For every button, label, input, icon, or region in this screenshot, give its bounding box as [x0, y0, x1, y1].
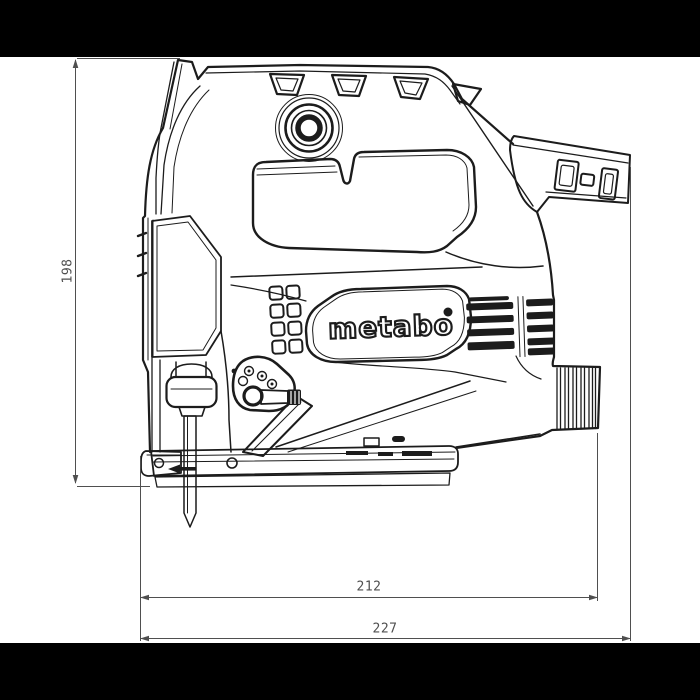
blade-alignment-arrow	[168, 465, 180, 474]
base-plate	[141, 436, 458, 487]
cord-strain-relief	[510, 136, 630, 212]
saw-blade	[184, 416, 196, 527]
speed-dial	[276, 95, 343, 162]
blade-clamp	[167, 362, 217, 416]
technical-drawing-page: { "colors": { "letterbox": "#000000", "c…	[0, 0, 700, 700]
dimension-body-length	[140, 433, 598, 641]
dimension-overall-length-label: 227	[373, 622, 398, 637]
waffle-grip-pattern	[269, 285, 302, 353]
jigsaw-line-drawing	[0, 57, 700, 643]
ventilation-slats	[466, 294, 555, 358]
drawing-canvas	[0, 57, 700, 643]
dimension-height-label: 198	[61, 259, 76, 284]
handle-cutout	[253, 150, 476, 252]
orbital-action-dial	[232, 357, 301, 411]
brand-logo: metabo	[328, 308, 455, 345]
dimension-body-length-label: 212	[357, 580, 382, 595]
dust-extraction-port	[557, 368, 596, 429]
jigsaw-body-outline	[138, 60, 600, 456]
